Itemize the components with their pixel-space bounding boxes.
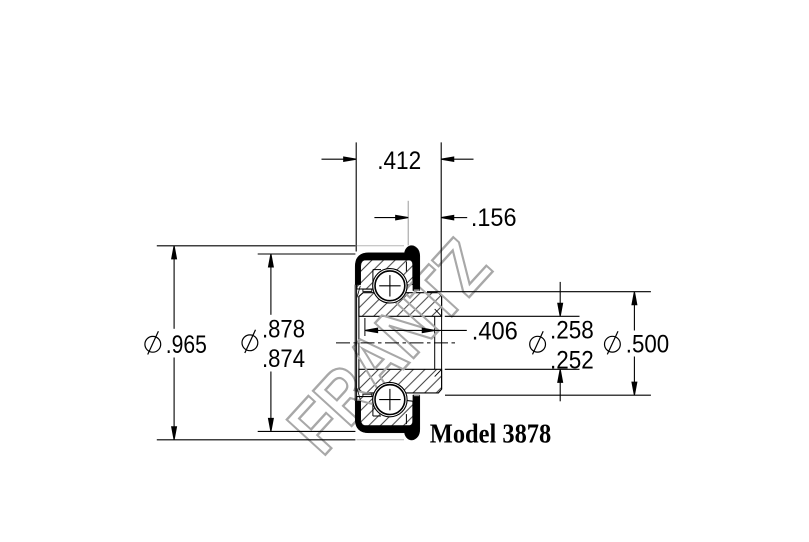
svg-text:.874: .874: [262, 345, 305, 373]
svg-text:.156: .156: [471, 204, 517, 232]
svg-text:Model 3878: Model 3878: [430, 418, 551, 448]
svg-text:.258: .258: [550, 317, 594, 345]
svg-text:.252: .252: [550, 347, 594, 375]
svg-text:.965: .965: [166, 331, 207, 359]
svg-text:.412: .412: [377, 147, 421, 175]
svg-text:.406: .406: [472, 317, 518, 345]
svg-text:.500: .500: [626, 331, 669, 359]
svg-text:.878: .878: [262, 316, 305, 344]
